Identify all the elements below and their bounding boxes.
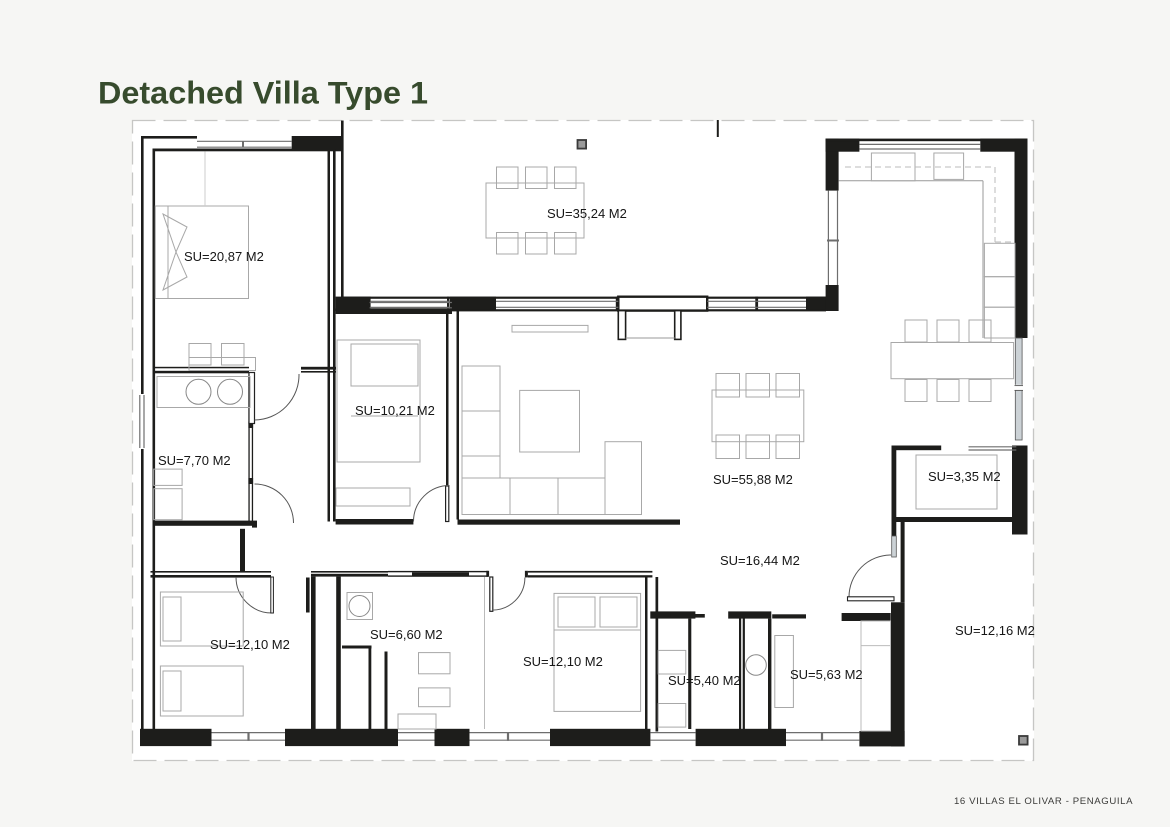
svg-text:SU=5,40 M2: SU=5,40 M2: [668, 673, 741, 688]
svg-text:SU=5,63 M2: SU=5,63 M2: [790, 667, 863, 682]
svg-text:SU=12,16 M2: SU=12,16 M2: [955, 623, 1035, 638]
svg-text:SU=3,35 M2: SU=3,35 M2: [928, 469, 1001, 484]
svg-text:SU=35,24 M2: SU=35,24 M2: [547, 206, 627, 221]
svg-text:SU=6,60 M2: SU=6,60 M2: [370, 627, 443, 642]
svg-text:SU=10,21 M2: SU=10,21 M2: [355, 403, 435, 418]
svg-text:16 VILLAS EL OLIVAR - PENAGUIL: 16 VILLAS EL OLIVAR - PENAGUILA: [954, 796, 1133, 807]
svg-text:SU=20,87 M2: SU=20,87 M2: [184, 249, 264, 264]
svg-text:SU=55,88 M2: SU=55,88 M2: [713, 472, 793, 487]
svg-text:Detached Villa Type 1: Detached Villa Type 1: [98, 75, 428, 111]
svg-text:SU=16,44 M2: SU=16,44 M2: [720, 553, 800, 568]
svg-text:SU=7,70 M2: SU=7,70 M2: [158, 453, 231, 468]
svg-text:SU=12,10 M2: SU=12,10 M2: [210, 637, 290, 652]
svg-text:SU=12,10 M2: SU=12,10 M2: [523, 654, 603, 669]
